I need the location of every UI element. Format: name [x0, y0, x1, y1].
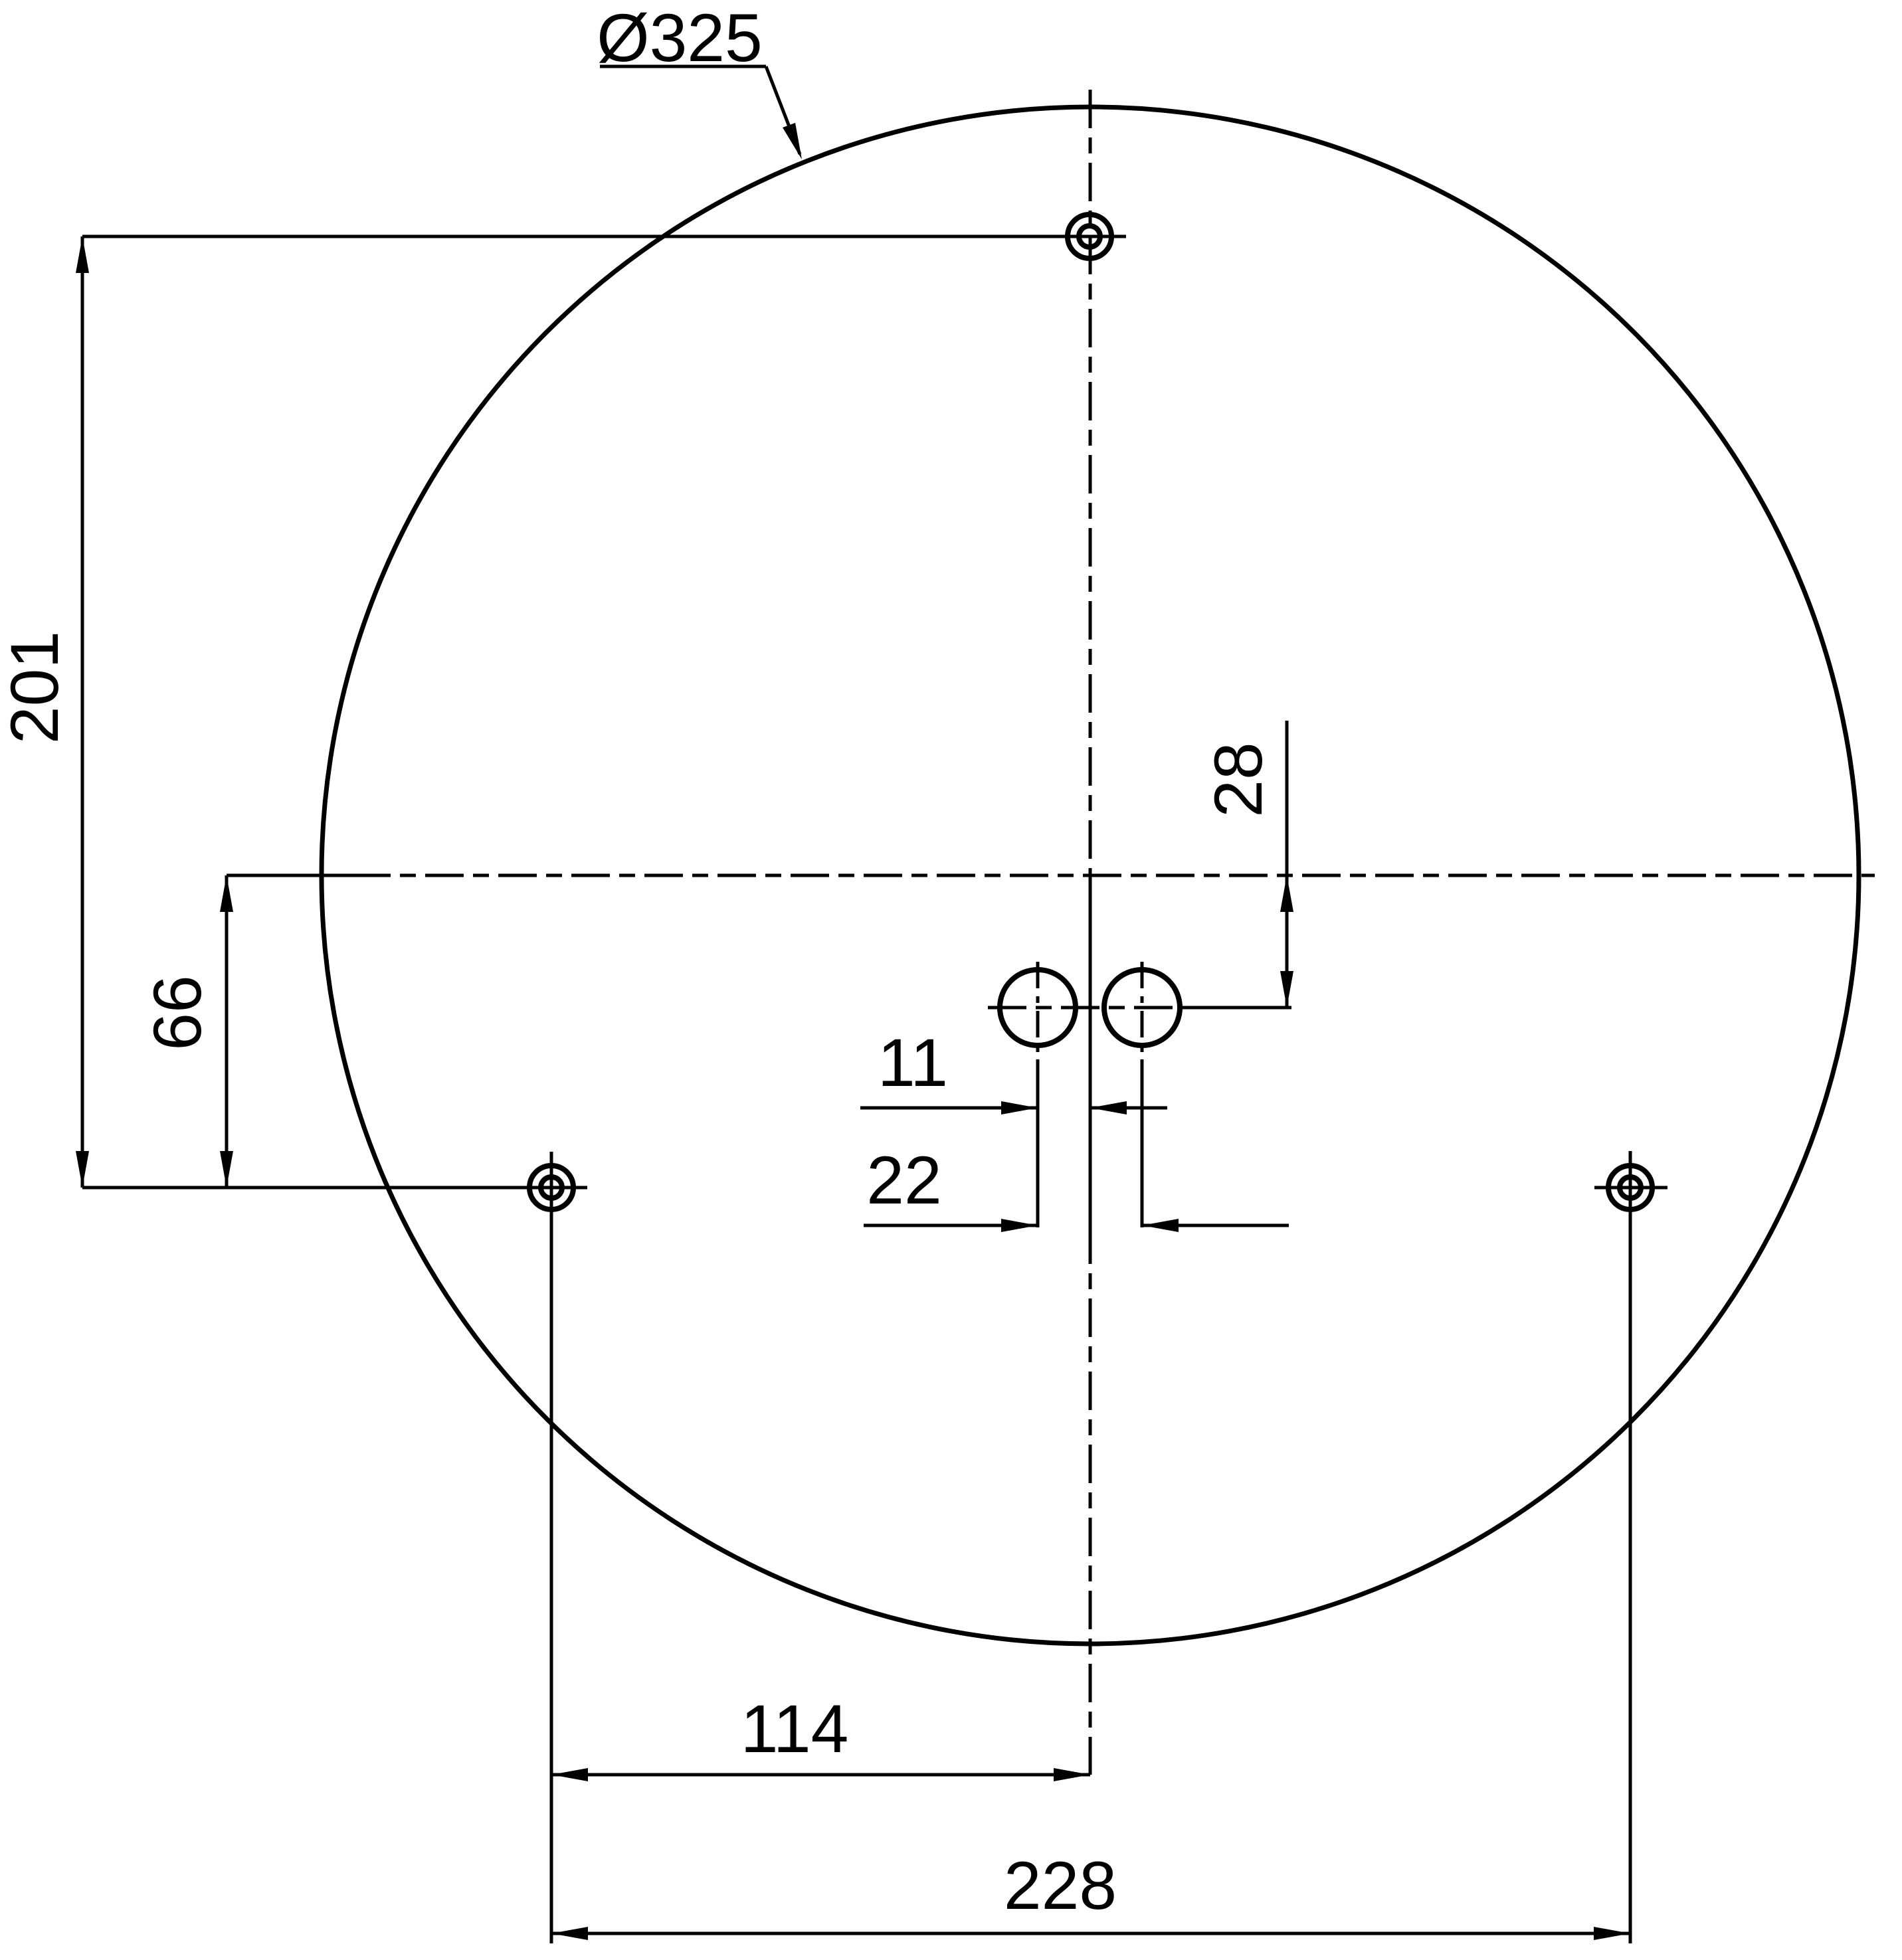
dim-201-label: 201: [0, 631, 72, 744]
ink-fill: Ø325 201 66 28: [0, 0, 1875, 1943]
dim-201-arrow-bottom: [76, 1151, 89, 1188]
dim-114-arrow-right: [1054, 1768, 1090, 1781]
dim-28-label: 28: [1200, 742, 1276, 817]
dim-11-arrow-right: [1090, 1101, 1127, 1114]
dim-11-arrow-left: [1001, 1101, 1038, 1114]
dim-diameter-label: Ø325: [597, 0, 763, 76]
drawing-page: Ø325 201 66 28: [0, 0, 1902, 1960]
dim-28: 28: [1200, 721, 1293, 1008]
dim-228-arrow-left: [551, 1927, 588, 1940]
dim-66-arrow-top: [220, 875, 233, 912]
dim-28-arrow-top: [1280, 875, 1293, 912]
dim-28-arrow-bottom: [1280, 971, 1293, 1008]
dim-228-label: 228: [1004, 1848, 1117, 1923]
dim-22-arrow-left: [1001, 1219, 1038, 1232]
dim-66-label: 66: [140, 975, 215, 1050]
dim-228: 228: [551, 1848, 1630, 1940]
dim-11-label: 11: [878, 1025, 948, 1101]
dim-22-label: 22: [866, 1142, 941, 1218]
dim-114: 114: [551, 1691, 1090, 1781]
dim-201-arrow-top: [76, 236, 89, 273]
dim-22: 22: [864, 1142, 1289, 1232]
dim-114-arrow-left: [551, 1768, 588, 1781]
dim-228-arrow-right: [1594, 1927, 1630, 1940]
dim-diameter: Ø325: [597, 0, 802, 159]
ink-stroke: Ø325 201 66 28: [0, 0, 1875, 1943]
technical-drawing: Ø325 201 66 28: [0, 0, 1902, 1960]
dim-66-arrow-bottom: [220, 1151, 233, 1188]
dim-22-arrow-right: [1142, 1219, 1179, 1232]
dim-diameter-arrow: [783, 123, 802, 159]
dim-201: 201: [0, 236, 89, 1188]
dim-114-label: 114: [741, 1691, 849, 1767]
dim-66: 66: [140, 875, 233, 1188]
